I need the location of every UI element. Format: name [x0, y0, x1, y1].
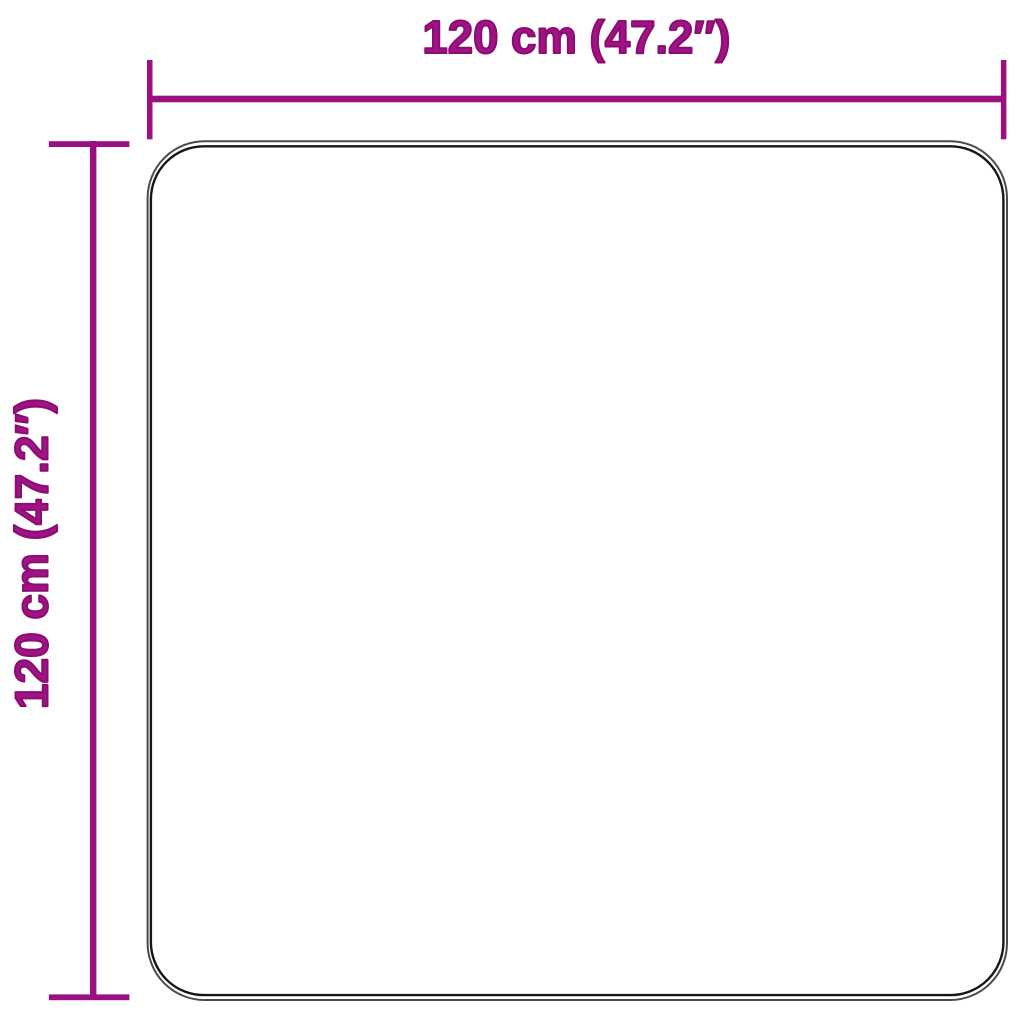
svg-text:120 cm (47.2″): 120 cm (47.2″)	[422, 11, 730, 63]
svg-text:120 cm (47.2″): 120 cm (47.2″)	[6, 398, 58, 709]
